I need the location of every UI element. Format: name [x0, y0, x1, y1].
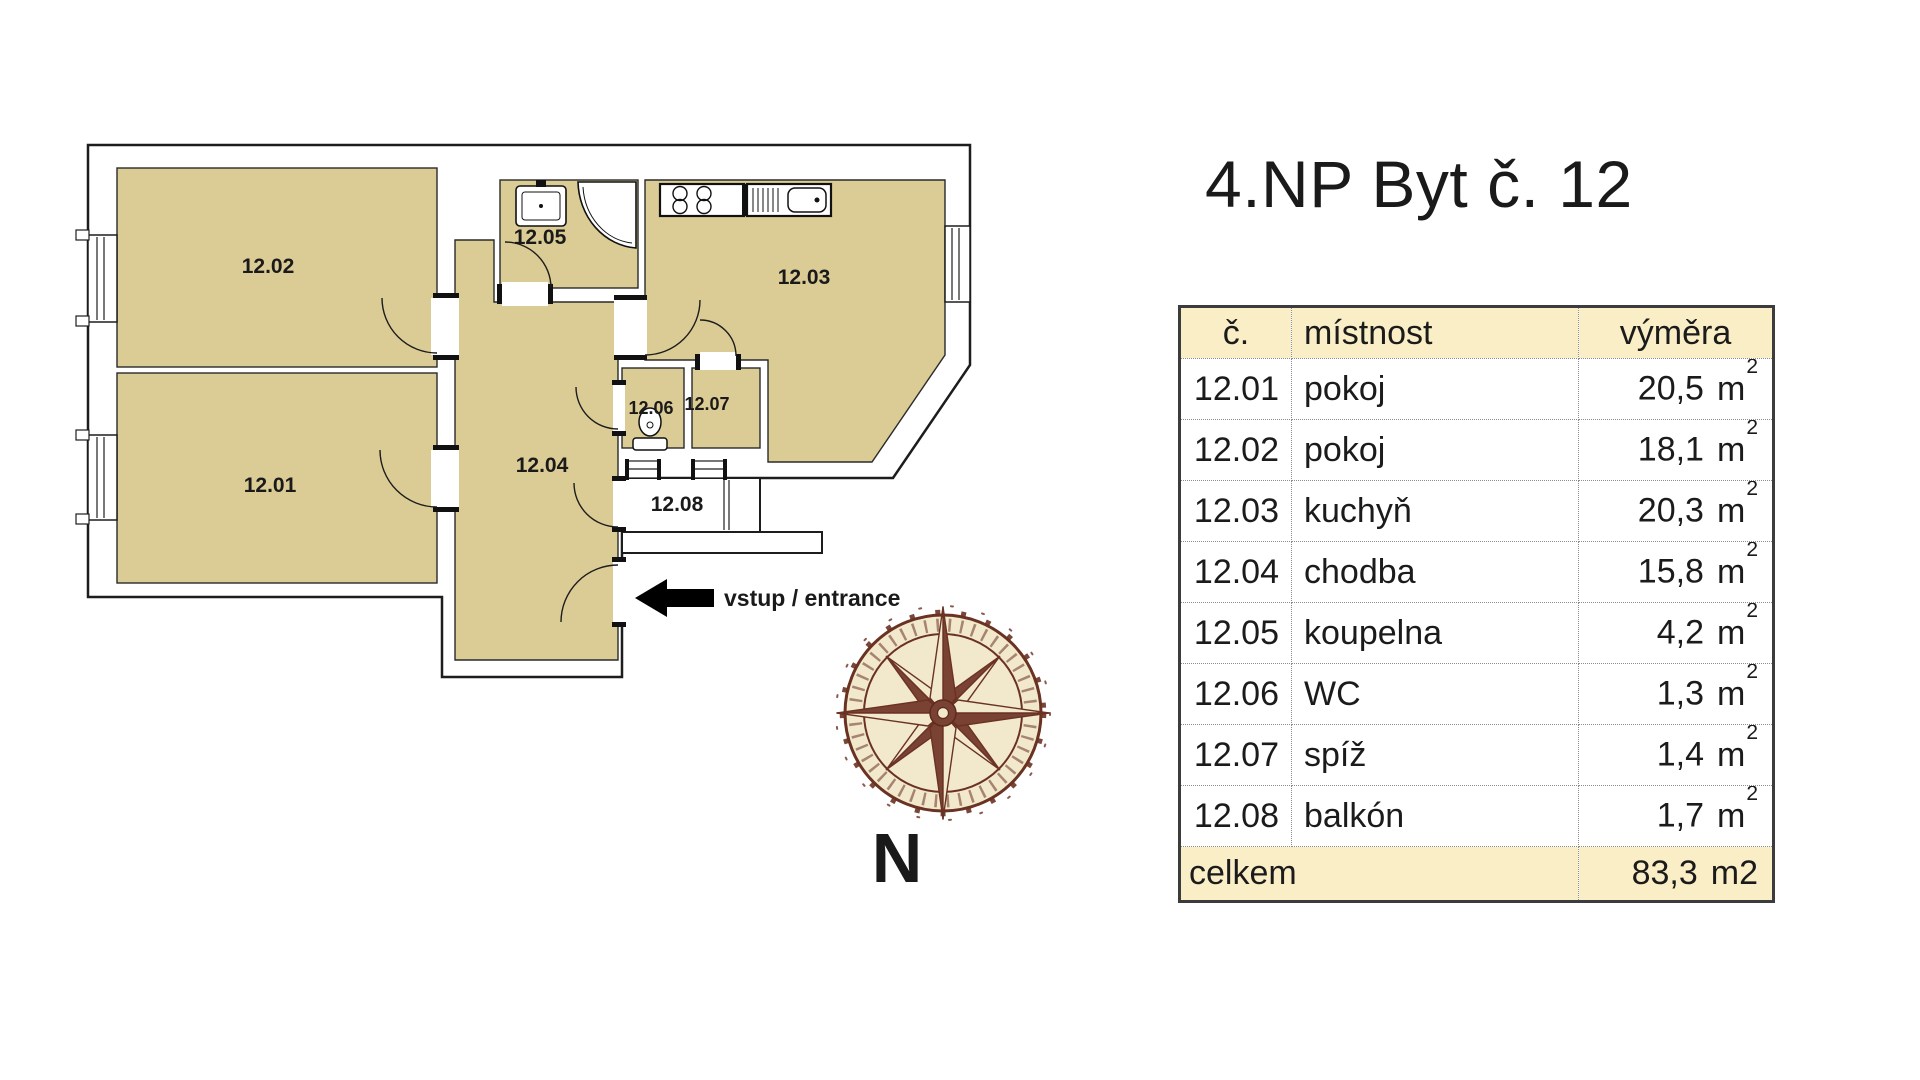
- table-row: 12.04 chodba 15,8m2: [1180, 542, 1774, 603]
- entrance-arrow-icon: [635, 579, 714, 617]
- area-sup: 2: [1746, 359, 1758, 379]
- cell-number: 12.05: [1180, 603, 1292, 664]
- bathroom-sink-icon: [516, 180, 566, 226]
- kitchen-sink-icon: [747, 184, 831, 216]
- area-sup: 2: [1746, 481, 1758, 501]
- area-value: 20,5: [1638, 370, 1704, 408]
- area-value: 1,4: [1657, 736, 1704, 774]
- area-sup: 2: [1746, 603, 1758, 623]
- table-row: 12.08 balkón 1,7m2: [1180, 786, 1774, 847]
- room-label-12-07: 12.07: [684, 394, 729, 414]
- area-value: 1,7: [1657, 797, 1704, 835]
- cell-room: koupelna: [1292, 603, 1579, 664]
- cell-number: 12.02: [1180, 420, 1292, 481]
- table-header-row: č. místnost výměra: [1180, 307, 1774, 359]
- cell-room: pokoj: [1292, 359, 1579, 420]
- cell-room: kuchyň: [1292, 481, 1579, 542]
- area-unit: m: [1717, 614, 1745, 652]
- area-unit: m: [1717, 553, 1745, 591]
- table-row: 12.07 spíž 1,4m2: [1180, 725, 1774, 786]
- cell-room: pokoj: [1292, 420, 1579, 481]
- header-area: výměra: [1579, 307, 1774, 359]
- room-label-12-06: 12.06: [628, 398, 673, 418]
- window: [88, 235, 117, 322]
- cell-number: 12.07: [1180, 725, 1292, 786]
- cell-area: 1,4m2: [1579, 725, 1774, 786]
- area-unit: m: [1717, 675, 1745, 713]
- room-label-12-01: 12.01: [244, 474, 297, 497]
- north-label: N: [872, 819, 923, 897]
- table-total-row: celkem 83,3m2: [1180, 847, 1774, 902]
- total-label: celkem: [1180, 847, 1579, 902]
- rooms-table: č. místnost výměra 12.01 pokoj 20,5m2 12…: [1178, 305, 1775, 903]
- total-area: 83,3m2: [1579, 847, 1774, 902]
- cell-number: 12.06: [1180, 664, 1292, 725]
- cell-room: chodba: [1292, 542, 1579, 603]
- table-row: 12.02 pokoj 18,1m2: [1180, 420, 1774, 481]
- balcony-railing: [622, 532, 822, 553]
- cell-room: WC: [1292, 664, 1579, 725]
- cell-number: 12.04: [1180, 542, 1292, 603]
- table-row: 12.06 WC 1,3m2: [1180, 664, 1774, 725]
- area-value: 4,2: [1657, 614, 1704, 652]
- area-unit: m2: [1711, 854, 1758, 892]
- area-unit: m: [1717, 370, 1745, 408]
- area-value: 83,3: [1632, 854, 1698, 892]
- header-number: č.: [1180, 307, 1292, 359]
- area-value: 18,1: [1638, 431, 1704, 469]
- cell-area: 4,2m2: [1579, 603, 1774, 664]
- page-title: 4.NP Byt č. 12: [1205, 146, 1805, 222]
- area-unit: m: [1717, 431, 1745, 469]
- compass-rose-icon: [836, 606, 1050, 820]
- cell-area: 20,5m2: [1579, 359, 1774, 420]
- room-label-12-04: 12.04: [516, 454, 569, 477]
- area-sup: 2: [1746, 725, 1758, 745]
- cell-area: 18,1m2: [1579, 420, 1774, 481]
- window: [88, 435, 117, 520]
- room-label-12-03: 12.03: [778, 266, 831, 289]
- area-unit: m: [1717, 736, 1745, 774]
- area-sup: 2: [1746, 542, 1758, 562]
- area-unit: m: [1717, 492, 1745, 530]
- area-value: 20,3: [1638, 492, 1704, 530]
- cell-area: 15,8m2: [1579, 542, 1774, 603]
- area-sup: 2: [1746, 664, 1758, 684]
- area-sup: 2: [1746, 420, 1758, 440]
- cell-room: spíž: [1292, 725, 1579, 786]
- entrance-label: vstup / entrance: [724, 585, 900, 611]
- cell-number: 12.01: [1180, 359, 1292, 420]
- area-sup: 2: [1746, 786, 1758, 806]
- table-row: 12.05 koupelna 4,2m2: [1180, 603, 1774, 664]
- room-label-12-02: 12.02: [242, 255, 295, 278]
- cell-number: 12.03: [1180, 481, 1292, 542]
- cell-number: 12.08: [1180, 786, 1292, 847]
- room-label-12-08: 12.08: [651, 493, 704, 516]
- table-row: 12.01 pokoj 20,5m2: [1180, 359, 1774, 420]
- cell-area: 20,3m2: [1579, 481, 1774, 542]
- room-label-12-05: 12.05: [514, 226, 567, 249]
- stove-icon: [660, 184, 747, 216]
- table-row: 12.03 kuchyň 20,3m2: [1180, 481, 1774, 542]
- header-room: místnost: [1292, 307, 1579, 359]
- cell-area: 1,7m2: [1579, 786, 1774, 847]
- page: 12.01 12.02 12.03 12.04 12.05 12.06 12.0…: [0, 0, 1920, 1080]
- window: [945, 226, 970, 302]
- area-value: 15,8: [1638, 553, 1704, 591]
- cell-room: balkón: [1292, 786, 1579, 847]
- area-unit: m: [1717, 797, 1745, 835]
- area-value: 1,3: [1657, 675, 1704, 713]
- cell-area: 1,3m2: [1579, 664, 1774, 725]
